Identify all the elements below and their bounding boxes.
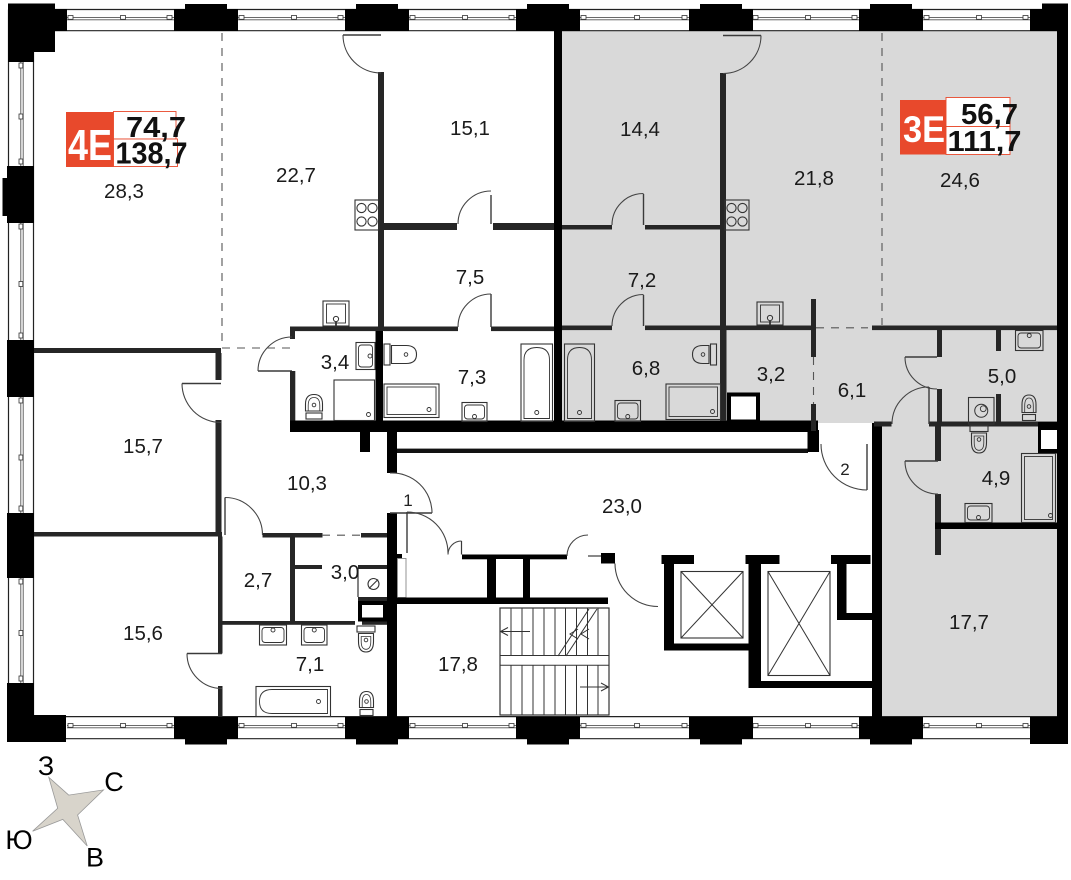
svg-text:7,3: 7,3 xyxy=(458,366,487,389)
svg-text:3,2: 3,2 xyxy=(757,363,786,386)
svg-text:5,0: 5,0 xyxy=(988,365,1017,388)
svg-text:138,7: 138,7 xyxy=(116,137,188,171)
svg-text:3Е: 3Е xyxy=(903,109,945,150)
svg-text:3,4: 3,4 xyxy=(321,351,350,374)
svg-text:3,0: 3,0 xyxy=(331,561,360,584)
svg-text:6,8: 6,8 xyxy=(632,357,661,380)
svg-text:7,2: 7,2 xyxy=(628,269,657,292)
svg-text:22,7: 22,7 xyxy=(276,164,316,187)
svg-text:2,7: 2,7 xyxy=(244,569,273,592)
svg-text:17,7: 17,7 xyxy=(949,611,989,634)
svg-text:Ю: Ю xyxy=(5,825,32,855)
svg-text:23,0: 23,0 xyxy=(602,495,642,518)
svg-text:6,1: 6,1 xyxy=(838,379,867,402)
svg-text:24,6: 24,6 xyxy=(940,169,980,192)
svg-text:1: 1 xyxy=(403,491,412,510)
svg-text:В: В xyxy=(86,843,104,873)
svg-text:111,7: 111,7 xyxy=(948,126,1022,158)
svg-text:7,1: 7,1 xyxy=(296,653,325,676)
svg-text:С: С xyxy=(104,767,124,797)
svg-text:2: 2 xyxy=(840,460,849,479)
svg-text:15,7: 15,7 xyxy=(123,435,163,458)
svg-text:15,6: 15,6 xyxy=(123,622,163,645)
svg-text:10,3: 10,3 xyxy=(287,472,327,495)
svg-text:28,3: 28,3 xyxy=(104,180,144,203)
svg-text:4Е: 4Е xyxy=(68,121,112,170)
svg-text:14,4: 14,4 xyxy=(620,118,660,141)
svg-text:7,5: 7,5 xyxy=(456,266,485,289)
svg-text:4,9: 4,9 xyxy=(982,467,1011,490)
svg-text:З: З xyxy=(38,751,54,781)
svg-text:21,8: 21,8 xyxy=(794,167,834,190)
svg-text:17,8: 17,8 xyxy=(438,653,478,676)
svg-text:15,1: 15,1 xyxy=(450,117,490,140)
